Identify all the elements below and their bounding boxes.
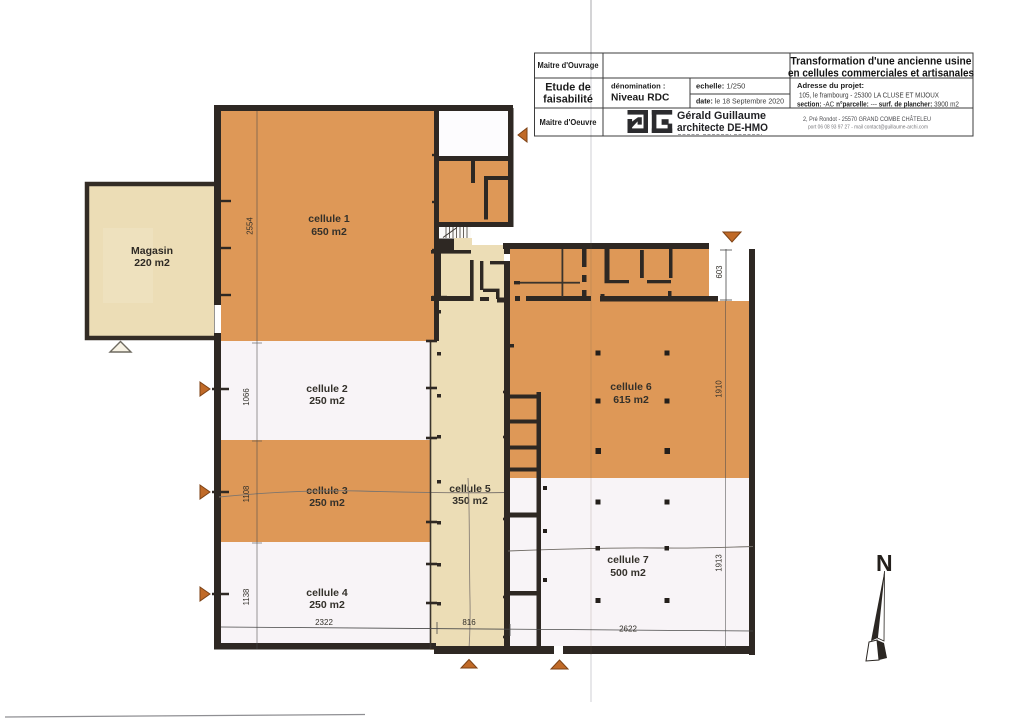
svg-text:en cellules commerciales et ar: en cellules commerciales et artisanales [788, 68, 974, 80]
svg-text:architecte DE-HMO: architecte DE-HMO [677, 122, 768, 134]
svg-text:350 m2: 350 m2 [452, 495, 488, 507]
svg-text:Etude de: Etude de [545, 82, 591, 94]
svg-text:cellule 2: cellule 2 [306, 383, 348, 395]
svg-text:Transformation d'une ancienne: Transformation d'une ancienne usine [791, 56, 972, 68]
svg-text:105, le frambourg - 25300 LA C: 105, le frambourg - 25300 LA CLUSE ET MI… [799, 93, 939, 100]
svg-text:250 m2: 250 m2 [309, 497, 345, 509]
svg-text:Magasin: Magasin [131, 245, 173, 257]
svg-text:1066: 1066 [242, 388, 251, 405]
svg-text:2322: 2322 [315, 618, 333, 627]
svg-text:1138: 1138 [242, 589, 251, 606]
svg-text:250 m2: 250 m2 [309, 395, 345, 407]
svg-text:cellule 7: cellule 7 [607, 554, 649, 566]
svg-text:date: le 18 Septembre 2020: date: le 18 Septembre 2020 [696, 97, 784, 106]
svg-text:port 06 08 93 97 27 - mail con: port 06 08 93 97 27 - mail contact@guill… [808, 125, 928, 131]
svg-text:603: 603 [715, 265, 724, 278]
svg-text:1108: 1108 [242, 486, 251, 503]
svg-text:615 m2: 615 m2 [613, 394, 649, 406]
svg-text:220 m2: 220 m2 [134, 257, 170, 269]
svg-text:faisabilité: faisabilité [543, 94, 593, 106]
svg-text:650 m2: 650 m2 [311, 226, 347, 238]
svg-text:dénomination :: dénomination : [611, 82, 665, 91]
svg-text:Niveau RDC: Niveau RDC [611, 93, 670, 104]
svg-text:echelle: 1/250: echelle: 1/250 [696, 82, 745, 91]
svg-text:Gérald Guillaume: Gérald Guillaume [677, 110, 766, 122]
svg-text:2, Pré Rondot - 25570 GRAND CO: 2, Pré Rondot - 25570 GRAND COMBE CHÂTEL… [803, 114, 931, 123]
svg-text:500 m2: 500 m2 [610, 567, 646, 579]
svg-text:section: -AC n°parcelle: ---: section: -AC n°parcelle: --- surf. de pl… [797, 101, 959, 109]
svg-text:cellule 6: cellule 6 [610, 381, 652, 393]
svg-text:Adresse du projet:: Adresse du projet: [797, 81, 864, 90]
svg-text:1910: 1910 [715, 380, 724, 398]
svg-text:cellule 4: cellule 4 [306, 587, 348, 599]
svg-text:250 m2: 250 m2 [309, 599, 345, 611]
svg-text:2622: 2622 [619, 625, 637, 634]
svg-text:2554: 2554 [246, 217, 255, 235]
svg-text:Maitre d'Oeuvre: Maitre d'Oeuvre [540, 118, 598, 127]
svg-text:Maitre d'Ouvrage: Maitre d'Ouvrage [538, 61, 600, 70]
svg-text:cellule 1: cellule 1 [308, 213, 350, 225]
svg-text:1913: 1913 [715, 554, 724, 571]
svg-text:816: 816 [462, 618, 476, 627]
